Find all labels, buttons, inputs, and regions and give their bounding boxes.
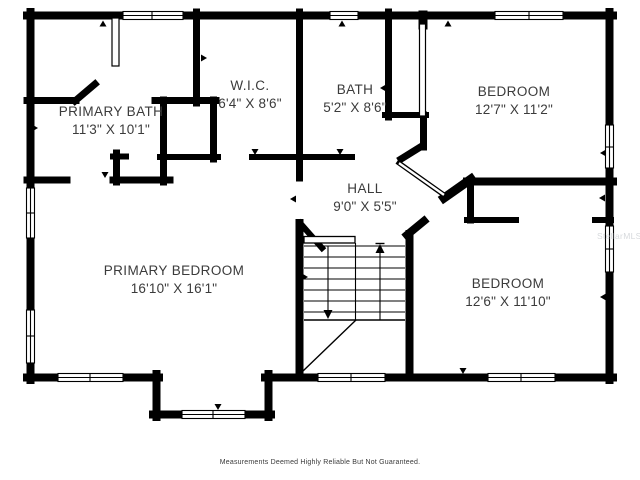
room-name: PRIMARY BATH xyxy=(59,103,164,121)
room-label-bath: BATH 5'2" X 8'6" xyxy=(323,81,386,117)
room-dimensions: 12'6" X 11'10" xyxy=(465,293,551,311)
toilet-door-leaf xyxy=(75,84,95,101)
mls-watermark: StellarMLS xyxy=(597,231,640,241)
floorplan-page: PRIMARY BATH 11'3" X 10'1" W.I.C. 6'4" X… xyxy=(0,0,640,480)
room-dimensions: 16'10" X 16'1" xyxy=(104,280,245,298)
bath-bedroom-thin-wall xyxy=(420,24,426,116)
bedroom-door-leaf-inner xyxy=(400,164,443,194)
stairs xyxy=(303,237,405,372)
room-name: BEDROOM xyxy=(465,275,551,293)
bath-glass-partition xyxy=(112,18,119,66)
room-label-primary-bedroom: PRIMARY BEDROOM 16'10" X 16'1" xyxy=(104,262,245,298)
floorplan-drawing xyxy=(0,0,640,480)
room-dimensions: 5'2" X 8'6" xyxy=(323,99,386,117)
room-label-wic: W.I.C. 6'4" X 8'6" xyxy=(218,77,281,113)
walls-layer xyxy=(27,12,613,417)
room-name: HALL xyxy=(333,180,396,198)
windows-layer xyxy=(27,12,614,419)
room-name: BATH xyxy=(323,81,386,99)
room-dimensions: 9'0" X 5'5" xyxy=(333,198,396,216)
room-label-primary-bath: PRIMARY BATH 11'3" X 10'1" xyxy=(59,103,164,139)
stair-break-line xyxy=(303,320,356,371)
stair-railing xyxy=(304,237,355,244)
room-label-bedroom-top-right: BEDROOM 12'7" X 11'2" xyxy=(475,83,553,119)
room-label-hall: HALL 9'0" X 5'5" xyxy=(333,180,396,216)
room-dimensions: 11'3" X 10'1" xyxy=(59,121,164,139)
room-name: W.I.C. xyxy=(218,77,281,95)
room-dimensions: 12'7" X 11'2" xyxy=(475,101,553,119)
opening-markers xyxy=(32,21,606,411)
room-name: BEDROOM xyxy=(475,83,553,101)
stair-up-arrow xyxy=(376,244,385,253)
room-name: PRIMARY BEDROOM xyxy=(104,262,245,280)
room-label-bedroom-bottom-right: BEDROOM 12'6" X 11'10" xyxy=(465,275,551,311)
room-dimensions: 6'4" X 8'6" xyxy=(218,95,281,113)
stair-down-arrow xyxy=(324,310,333,319)
measurements-disclaimer: Measurements Deemed Highly Reliable But … xyxy=(0,459,640,466)
